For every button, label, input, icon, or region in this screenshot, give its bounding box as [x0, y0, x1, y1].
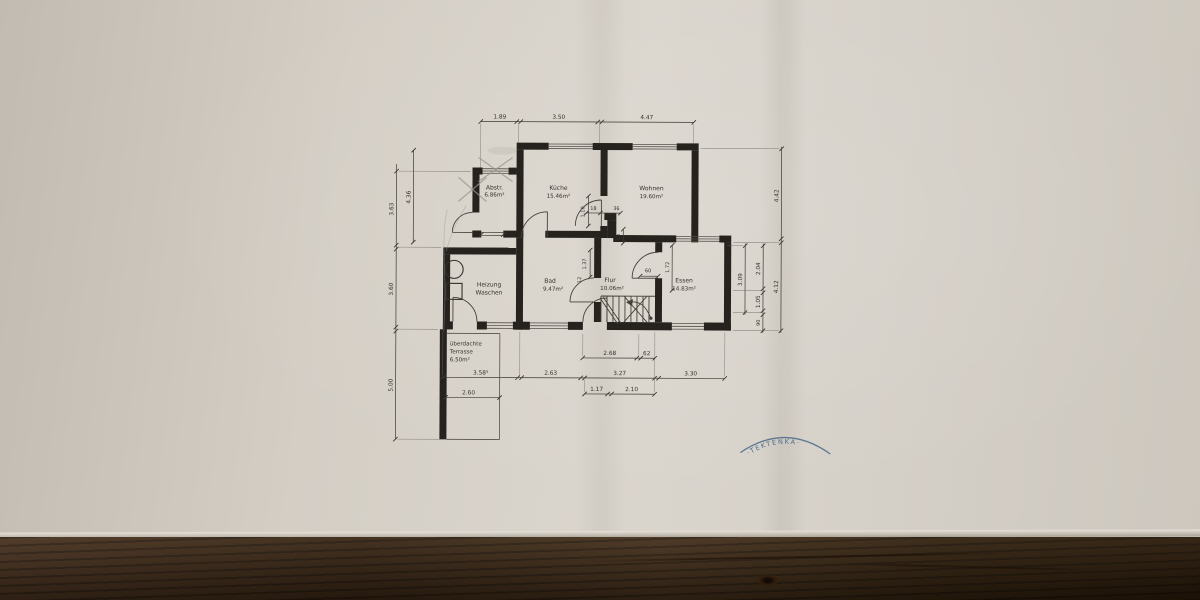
room-label-kueche: Küche: [549, 185, 568, 192]
photo-of-floor-plan: Abstr. 6.86m² Küche 15.46m² Wohnen 19.60…: [0, 0, 1200, 600]
pencil-smudge: [488, 147, 518, 155]
room-label-terrasse-2: Terrasse: [449, 349, 474, 355]
room-area-flur: 10.06m²: [600, 285, 624, 292]
dim-right-mid-2: 1.05: [756, 295, 762, 308]
dim-right-inner: 3.09: [738, 273, 744, 286]
dim-interior-43: 43: [616, 234, 622, 240]
dim-right-outer-2: 4.12: [774, 280, 780, 293]
dim-left-outer-2: 3.60: [389, 282, 395, 295]
dim-terrace: 2.60: [462, 390, 475, 396]
room-label-heizung: Heizung: [477, 281, 502, 288]
extension-lines: [397, 123, 779, 441]
room-label-bad: Bad: [544, 278, 556, 285]
room-area-wohnen: 19.60m²: [640, 193, 664, 200]
dim-right-mid-3: 90: [756, 319, 762, 325]
dim-interior-172: 1.72: [665, 262, 671, 273]
dim-interior-12: 12: [577, 277, 583, 283]
dim-stair-1: 2.68: [603, 351, 616, 357]
dim-entry-1: 1.17: [590, 387, 603, 393]
dim-left-inner: 4.36: [406, 190, 412, 203]
dimension-lines: [395, 121, 781, 441]
floor-plan-drawing: Abstr. 6.86m² Küche 15.46m² Wohnen 19.60…: [0, 0, 1200, 600]
room-label-waschen: Waschen: [476, 289, 503, 296]
room-label-abstr: Abstr.: [486, 185, 503, 192]
pencil-x-over-window: [479, 157, 513, 181]
dim-right-mid-1: 2.04: [756, 262, 762, 275]
dim-interior-18: 18: [590, 206, 596, 212]
room-label-terrasse-1: überdachte: [450, 341, 483, 347]
room-area-bad: 9.47m²: [543, 286, 563, 293]
tektenka-stamp: ·TEKTENKA·: [740, 437, 830, 459]
dim-entry-2: 2.10: [625, 387, 638, 393]
room-area-essen: 14.83m²: [672, 285, 696, 292]
dim-bottom-3: 3.27: [613, 371, 626, 377]
room-label-essen: Essen: [675, 277, 693, 284]
room-area-kueche: 15.46m²: [547, 193, 571, 200]
dim-interior-36: 36: [613, 206, 619, 212]
staircase: [600, 296, 655, 324]
dim-bottom-1: 3.58⁵: [473, 369, 489, 376]
dim-interior-110: 1.10: [580, 206, 586, 217]
dim-bottom-4: 3.30: [684, 371, 697, 377]
room-area-terrasse: 6.50m²: [450, 356, 470, 363]
dim-interior-137: 1.37: [582, 258, 588, 269]
dim-left-outer-1: 3.63: [389, 202, 395, 215]
dim-top-1: 1.89: [493, 115, 506, 121]
room-area-abstr: 6.86m²: [484, 191, 504, 198]
room-label-flur: Flur: [604, 277, 616, 284]
dim-left-outer-3: 5.00: [389, 378, 395, 391]
room-label-wohnen: Wohnen: [639, 185, 664, 192]
stamp-text: ·TEKTENKA·: [745, 438, 801, 458]
dim-stair-2: 62: [643, 351, 651, 357]
dim-bottom-2: 2.63: [544, 371, 557, 377]
dim-top-2: 3.50: [552, 115, 565, 121]
dim-right-outer-1: 4.42: [774, 189, 780, 202]
dim-interior-60: 60: [645, 268, 651, 274]
door-arcs: [452, 199, 659, 322]
dim-top-3: 4.47: [640, 115, 653, 121]
